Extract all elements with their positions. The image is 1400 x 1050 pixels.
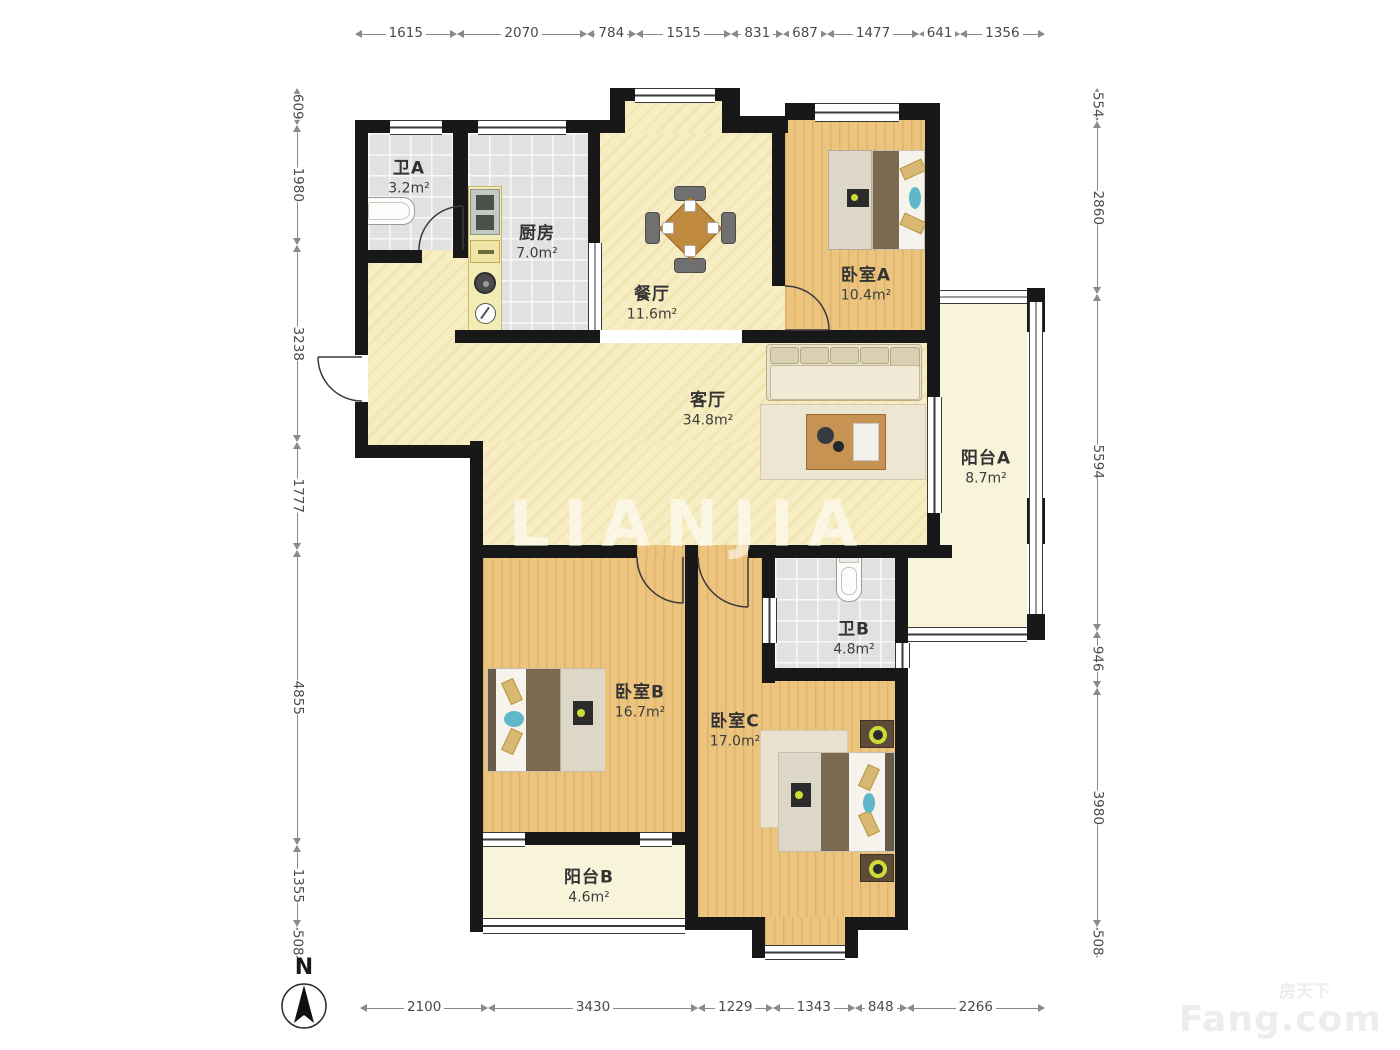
dimension-segment: 3430: [488, 1000, 697, 1016]
dimension-label: 1343: [794, 1001, 834, 1015]
dimension-chain-bottom: 21003430122913438482266: [360, 1000, 1045, 1016]
dimension-segment: 784: [587, 26, 636, 42]
dimension-segment: 1615: [355, 26, 457, 42]
dimension-segment: 4855: [289, 550, 305, 845]
dimension-chain-left: 60919803238177748551355508: [289, 88, 305, 958]
dimension-chain-top: 16152070784151583168714776411356: [355, 26, 1045, 42]
dimension-segment: 687: [783, 26, 826, 42]
dimension-label: 3238: [287, 326, 307, 360]
dimension-label: 641: [924, 27, 956, 41]
dimension-segment: 1777: [289, 442, 305, 550]
dimension-segment: 848: [855, 1000, 907, 1016]
dimension-label: 1777: [287, 479, 307, 513]
room-label-bedA: 卧室A10.4m²: [841, 261, 891, 304]
dimension-segment: 1980: [289, 125, 305, 245]
door-bedB: [637, 557, 683, 603]
room-label-bedC: 卧室C17.0m²: [710, 707, 760, 750]
dimension-segment: 641: [919, 26, 959, 42]
dimension-segment: 2070: [457, 26, 587, 42]
watermark-corner: 房天下 Fang.com: [1179, 977, 1382, 1038]
room-label-balconyA: 阳台A8.7m²: [961, 444, 1011, 487]
room-label-dining: 餐厅11.6m²: [627, 280, 677, 323]
dimension-segment: 946: [1089, 631, 1105, 688]
dimension-label: 3980: [1087, 790, 1107, 824]
dimension-label: 1980: [287, 168, 307, 202]
dimension-segment: 2266: [907, 1000, 1045, 1016]
dimension-label: 4855: [287, 680, 307, 714]
dimension-label: 5594: [1087, 445, 1107, 479]
room-label-bedB: 卧室B16.7m²: [615, 678, 665, 721]
dimension-label: 1477: [853, 27, 893, 41]
dimension-label: 1515: [663, 27, 703, 41]
dimension-label: 687: [789, 27, 821, 41]
dimension-segment: 2100: [360, 1000, 488, 1016]
compass-north-label: N: [295, 955, 313, 980]
dimension-segment: 1343: [773, 1000, 855, 1016]
dimension-label: 848: [865, 1001, 897, 1015]
dimension-segment: 1515: [636, 26, 731, 42]
dimension-label: 831: [741, 27, 773, 41]
door-bedA: [785, 286, 829, 330]
dimension-label: 2860: [1087, 190, 1107, 224]
dimension-segment: 1477: [827, 26, 920, 42]
room-label-bathB: 卫B4.8m²: [833, 615, 875, 658]
door-corridor: [698, 557, 748, 607]
dimension-segment: 1229: [698, 1000, 773, 1016]
dimension-label: 2070: [501, 27, 541, 41]
dimension-label: 1229: [715, 1001, 755, 1015]
floorplan-canvas: 卫A3.2m² 厨房7.0m² 餐厅11.6m² 卧室A10.4m² 客厅34.…: [0, 0, 1400, 1050]
dimension-label: 784: [595, 27, 627, 41]
dimension-segment: 508: [1089, 927, 1105, 958]
door-entry: [318, 357, 362, 401]
dimension-chain-right: 554286055949463980508: [1089, 88, 1105, 958]
dimension-label: 1355: [287, 869, 307, 903]
dimension-segment: 3238: [289, 245, 305, 442]
dimension-label: 1615: [386, 27, 426, 41]
dimension-segment: 3980: [1089, 688, 1105, 928]
dimension-segment: 1355: [289, 845, 305, 927]
dimension-segment: 609: [289, 88, 305, 125]
room-label-living: 客厅34.8m²: [683, 386, 733, 429]
dimension-segment: 554: [1089, 88, 1105, 121]
room-label-balconyB: 阳台B4.6m²: [564, 863, 614, 906]
room-label-kitchen: 厨房7.0m²: [516, 219, 558, 262]
dimension-segment: 831: [731, 26, 783, 42]
dimension-label: 1356: [982, 27, 1022, 41]
dimension-label: 2100: [404, 1001, 444, 1015]
dimension-label: 508: [1087, 930, 1107, 956]
dimension-label: 3430: [573, 1001, 613, 1015]
dimension-segment: 5594: [1089, 294, 1105, 631]
dimension-label: 554: [1087, 92, 1107, 118]
dimension-segment: 1356: [960, 26, 1045, 42]
dimension-label: 609: [287, 94, 307, 120]
watermark-center: LIANJIA: [509, 488, 872, 562]
dimension-label: 2266: [956, 1001, 996, 1015]
watermark-fang-logo: Fang.com: [1179, 1002, 1382, 1038]
north-compass-icon: N: [272, 948, 336, 1044]
door-bathA: [419, 206, 463, 250]
dimension-segment: 2860: [1089, 121, 1105, 293]
dimension-label: 946: [1087, 646, 1107, 672]
room-label-bathA: 卫A3.2m²: [388, 154, 430, 197]
